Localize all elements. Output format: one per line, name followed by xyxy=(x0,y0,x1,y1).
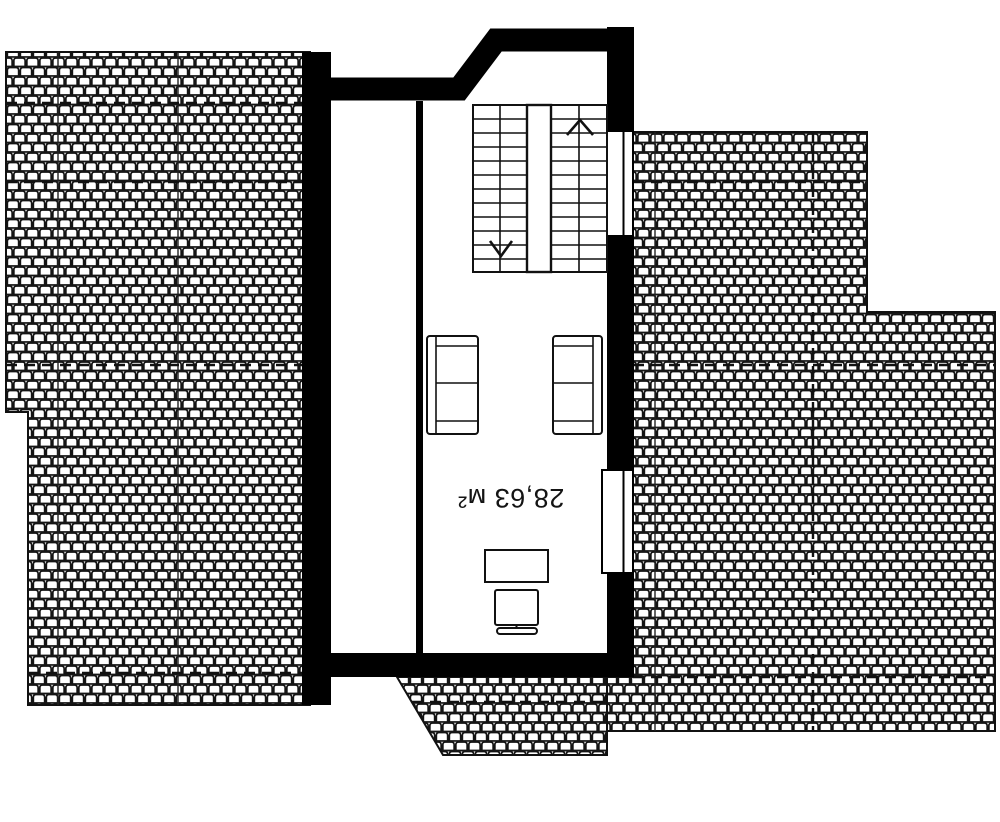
floor-plan: 28,63 м² xyxy=(0,0,1000,822)
sofa-body xyxy=(427,336,478,434)
staircase xyxy=(473,105,607,272)
bottom-wall xyxy=(331,653,634,677)
staircase-divider xyxy=(527,105,551,272)
right-wall xyxy=(607,27,634,677)
left-wall xyxy=(302,52,331,705)
interior-partition-wall xyxy=(416,101,423,654)
desk xyxy=(485,550,548,582)
office-chair xyxy=(495,590,538,634)
left-roof-outline xyxy=(6,52,310,705)
floor-plan-drawing: 28,63 м² xyxy=(0,0,1000,822)
sofa-body xyxy=(553,336,602,434)
desk-top xyxy=(485,550,548,582)
window-frame xyxy=(602,470,633,573)
sofa-right xyxy=(553,336,602,434)
room-area-label: 28,63 м² xyxy=(458,483,565,513)
chair-seat xyxy=(495,590,538,625)
left-roof xyxy=(6,52,310,705)
sofa-left xyxy=(427,336,478,434)
chair-base xyxy=(497,628,537,634)
window-bottom xyxy=(602,470,633,573)
